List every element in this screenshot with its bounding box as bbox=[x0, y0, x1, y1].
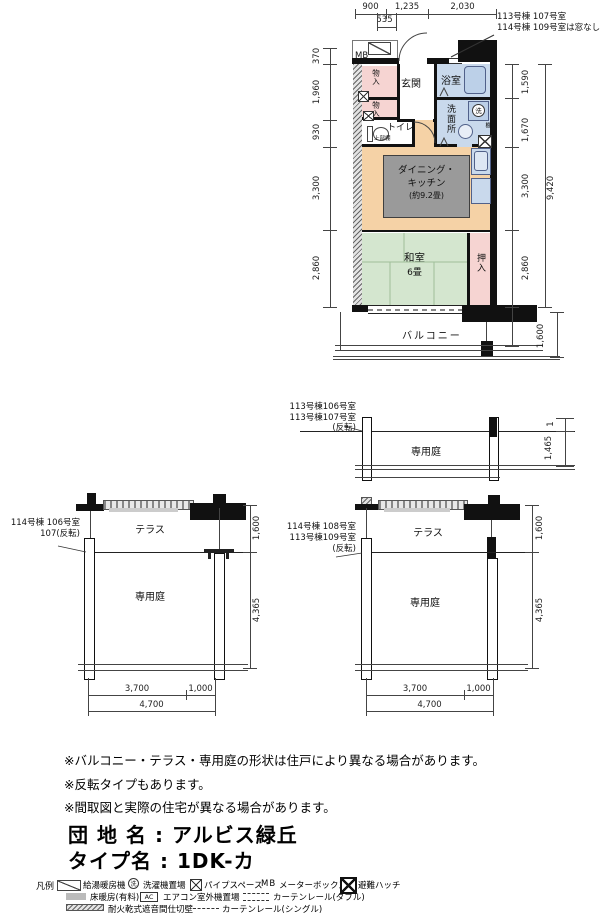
water-heater-icon bbox=[57, 880, 81, 891]
tick bbox=[556, 418, 574, 419]
legend-pipe-space: パイプスペース bbox=[204, 879, 262, 891]
dim-lterrace-1600: 1,600 bbox=[252, 508, 262, 548]
dim-r-1000: 1,000 bbox=[464, 684, 493, 694]
tick bbox=[323, 147, 337, 148]
unit-label-line: 113号棟107号室 bbox=[270, 413, 356, 424]
post bbox=[214, 553, 225, 680]
unit-label-line: (反転) bbox=[278, 544, 356, 555]
toilet-shelf-label: 上部棚 bbox=[374, 134, 391, 142]
post bbox=[487, 558, 498, 680]
dim-line bbox=[557, 312, 558, 357]
tick bbox=[323, 307, 337, 308]
kitchen-counter bbox=[471, 178, 491, 204]
pipe-space-icon bbox=[190, 879, 202, 891]
terrace-line bbox=[361, 552, 530, 553]
garden-line bbox=[355, 465, 575, 466]
balcony-hatch-block bbox=[481, 341, 493, 357]
legend-floor-heating: 床暖房(有料) bbox=[90, 891, 139, 903]
dim-line bbox=[366, 695, 493, 696]
sink bbox=[458, 124, 473, 139]
garden-line bbox=[78, 670, 248, 671]
wall bbox=[362, 144, 412, 147]
curtain-single-icon bbox=[193, 908, 219, 909]
separator: : bbox=[155, 823, 164, 847]
dim-line bbox=[88, 695, 215, 696]
dim-rterrace-1600: 1,600 bbox=[535, 508, 545, 548]
left-garden-unit-label: 114号棟 106号室 107(反転) bbox=[0, 518, 80, 540]
dim-line bbox=[565, 418, 566, 467]
dim-l-3700: 3,700 bbox=[88, 684, 186, 694]
wall bbox=[427, 58, 449, 64]
ac-icon: AC bbox=[140, 892, 158, 902]
type-name: 1DK-カ bbox=[177, 849, 255, 873]
legend-washer: 洗濯機置場 bbox=[143, 879, 186, 891]
shelf-label: 棚 bbox=[484, 122, 490, 128]
fence-line bbox=[366, 508, 367, 538]
dim-right-1590: 1,590 bbox=[521, 62, 531, 102]
dim-r-4700: 4,700 bbox=[366, 700, 493, 710]
dim-top-2030: 2,030 bbox=[428, 2, 497, 12]
dim-1465: 1,465 bbox=[544, 428, 554, 468]
post bbox=[361, 538, 372, 680]
oshiire-label: 押入 bbox=[475, 253, 484, 273]
dk-label-3: (約9.2畳) bbox=[384, 190, 469, 202]
estate-label: 団 地 名 bbox=[68, 823, 147, 847]
dim-left-2860: 2,860 bbox=[312, 248, 322, 288]
entrance-door-arc bbox=[399, 33, 427, 61]
tick bbox=[377, 13, 378, 31]
wall bbox=[464, 504, 520, 520]
ground-line bbox=[333, 359, 560, 360]
tick bbox=[525, 552, 539, 553]
rail-shadow bbox=[384, 508, 450, 512]
tick bbox=[505, 64, 519, 65]
left-garden-label: 専用庭 bbox=[110, 588, 190, 603]
floor-plan-sheet: 900 1,235 2,030 535 113号棟 107号室 114号棟 10… bbox=[0, 0, 609, 915]
dk-label-2: キッチン bbox=[384, 177, 469, 190]
fence-line bbox=[90, 511, 91, 540]
legend-water-heater: 給湯暖房機 bbox=[83, 879, 126, 891]
tick bbox=[505, 307, 519, 308]
tick bbox=[505, 230, 519, 231]
tick bbox=[525, 668, 539, 669]
pipe-space-icon bbox=[478, 135, 492, 148]
ext-line bbox=[215, 678, 216, 716]
dim-right-1670: 1,670 bbox=[521, 110, 531, 150]
garden-line bbox=[355, 670, 528, 671]
unit-label-line: 113号棟109号室 bbox=[278, 533, 356, 544]
storage2-label: 物入 bbox=[372, 101, 380, 118]
dk-rug: ダイニング・ キッチン (約9.2畳) bbox=[383, 155, 470, 218]
garden-fence-line bbox=[300, 431, 575, 432]
kitchen-sink bbox=[474, 151, 488, 171]
dim-left-930: 930 bbox=[312, 112, 322, 152]
dim-line bbox=[532, 505, 533, 668]
balcony-label: バルコニー bbox=[402, 327, 462, 342]
tick bbox=[355, 9, 356, 19]
note-2: ※反転タイプもあります。 bbox=[64, 774, 211, 793]
tick bbox=[525, 505, 539, 506]
tick bbox=[538, 307, 552, 308]
dim-line bbox=[88, 711, 215, 712]
dim-left-1960: 1,960 bbox=[312, 72, 322, 112]
post-cap bbox=[489, 417, 497, 437]
right-terrace-label: テラス bbox=[398, 524, 458, 539]
washroom-label: 洗面所 bbox=[445, 104, 454, 134]
toilet-label: トイレ bbox=[387, 120, 414, 133]
washer-icon: 洗 bbox=[128, 878, 139, 889]
unit-label-line: 114号棟 108号室 bbox=[278, 522, 356, 533]
bath-label: 浴室 bbox=[441, 72, 461, 87]
dim-line bbox=[330, 48, 331, 307]
dk-label-1: ダイニング・ bbox=[384, 164, 469, 177]
bathtub bbox=[464, 66, 486, 94]
ground-line bbox=[333, 356, 560, 357]
dim-rgarden-4365: 4,365 bbox=[535, 590, 545, 630]
wall bbox=[462, 305, 537, 322]
post-cap bbox=[213, 494, 226, 503]
garden-line bbox=[355, 469, 575, 470]
storage1-label: 物入 bbox=[372, 69, 380, 86]
dim-balcony-1600: 1,600 bbox=[536, 316, 546, 356]
garden-line bbox=[78, 664, 248, 665]
type-label: タイプ名 bbox=[68, 849, 152, 873]
tick bbox=[323, 64, 337, 65]
dim-total-9420: 9,420 bbox=[546, 168, 556, 208]
post bbox=[84, 538, 95, 680]
dim-top-1235: 1,235 bbox=[386, 2, 428, 12]
top-garden-unit-label: 113号棟106号室 113号棟107号室 (反転) bbox=[270, 402, 356, 434]
ac-stand-leg bbox=[226, 552, 229, 559]
unit-label-line: 107(反転) bbox=[0, 529, 80, 540]
washitsu-label: 和室 bbox=[362, 250, 467, 265]
right-garden-label: 専用庭 bbox=[385, 594, 465, 609]
type-name-line: タイプ名:1DK-カ bbox=[68, 845, 255, 874]
wall bbox=[190, 503, 246, 520]
garden-line bbox=[355, 477, 500, 478]
washitsu-size-label: 6畳 bbox=[362, 265, 467, 278]
floor-heating-icon bbox=[66, 893, 86, 900]
washer-symbol: 洗 bbox=[472, 104, 485, 117]
estate-name-line: 団 地 名:アルビス緑丘 bbox=[68, 819, 298, 848]
tick bbox=[556, 431, 574, 432]
dim-right-3300: 3,300 bbox=[521, 166, 531, 206]
post-cap bbox=[87, 493, 96, 511]
fire-wall-icon bbox=[66, 904, 104, 911]
left-terrace-label: テラス bbox=[120, 521, 180, 536]
dim-r-3700: 3,700 bbox=[366, 684, 464, 694]
top-garden-label: 専用庭 bbox=[362, 443, 490, 458]
dim-left-3300: 3,300 bbox=[312, 168, 322, 208]
balcony-rail bbox=[335, 350, 543, 351]
room-genkan bbox=[397, 64, 437, 120]
ac-stand-leg bbox=[208, 552, 211, 559]
tick bbox=[550, 312, 564, 313]
dim-top-900: 900 bbox=[355, 2, 386, 12]
tick bbox=[538, 64, 552, 65]
dim-line bbox=[250, 505, 251, 668]
dim-lgarden-4365: 4,365 bbox=[252, 590, 262, 630]
curtain-double-icon bbox=[243, 893, 269, 901]
tick bbox=[505, 98, 519, 99]
sliding-door-track bbox=[362, 230, 490, 232]
dim-line bbox=[512, 64, 513, 346]
note-3: ※間取図と実際の住宅が異なる場合があります。 bbox=[64, 797, 336, 816]
dim-l-4700: 4,700 bbox=[88, 700, 215, 710]
legend-ac-space: エアコン室外機置場 bbox=[163, 891, 240, 903]
pole bbox=[219, 508, 220, 549]
tick bbox=[243, 668, 257, 669]
estate-name: アルビス緑丘 bbox=[172, 823, 298, 847]
right-garden-unit-label: 114号棟 108号室 113号棟109号室 (反転) bbox=[278, 522, 356, 555]
post-cap bbox=[488, 495, 500, 504]
tick bbox=[323, 48, 337, 49]
dim-l-1000: 1,000 bbox=[186, 684, 215, 694]
separator: : bbox=[160, 849, 169, 873]
pole bbox=[491, 520, 492, 538]
tick bbox=[505, 147, 519, 148]
legend-heading: 凡例 bbox=[36, 879, 54, 892]
wall bbox=[467, 233, 470, 305]
dim-left-370: 370 bbox=[312, 36, 322, 76]
dim-line bbox=[366, 711, 493, 712]
label-leader bbox=[58, 546, 86, 552]
rail-shadow bbox=[109, 508, 178, 512]
wall bbox=[352, 305, 368, 312]
tick bbox=[556, 466, 574, 467]
legend-mb-abbr: MB bbox=[261, 879, 276, 889]
annotation-line1: 113号棟 107号室 bbox=[497, 12, 600, 23]
tick bbox=[323, 230, 337, 231]
unit-label-line: 114号棟 106号室 bbox=[0, 518, 80, 529]
dim-line bbox=[377, 27, 396, 28]
genkan-label: 玄関 bbox=[401, 75, 421, 90]
tick bbox=[428, 9, 429, 19]
post-cap bbox=[487, 537, 496, 558]
tick bbox=[243, 505, 257, 506]
tick bbox=[243, 552, 257, 553]
pipe-space-icon bbox=[358, 91, 369, 102]
legend-fire-wall: 耐火乾式遮音間仕切壁 bbox=[108, 903, 193, 915]
balcony-door-sill bbox=[368, 305, 462, 314]
tick bbox=[505, 346, 519, 347]
terrace-line bbox=[84, 552, 250, 553]
note-1: ※バルコニー・テラス・専用庭の形状は住戸により異なる場合があります。 bbox=[64, 750, 485, 769]
tick bbox=[550, 357, 564, 358]
dim-right-2860: 2,860 bbox=[521, 248, 531, 288]
wall bbox=[397, 64, 400, 120]
wall bbox=[437, 97, 490, 100]
ext-line bbox=[493, 678, 494, 716]
wall bbox=[490, 58, 497, 312]
legend-curtain-single: カーテンレール(シングル) bbox=[222, 903, 322, 915]
annotation-line2: 114号棟 109号室は窓なし bbox=[497, 23, 600, 34]
unit-label-line: 113号棟106号室 bbox=[270, 402, 356, 413]
garden-line bbox=[355, 664, 528, 665]
wall bbox=[437, 144, 457, 147]
water-heater-icon bbox=[368, 42, 391, 55]
legend-meter-box: メーターボックス bbox=[279, 879, 347, 891]
tick bbox=[323, 120, 337, 121]
tick bbox=[396, 13, 397, 31]
legend-curtain-double: カーテンレール(ダブル) bbox=[273, 891, 365, 903]
legend-escape-hatch: 避難ハッチ bbox=[358, 879, 401, 891]
window-annotation: 113号棟 107号室 114号棟 109号室は窓なし bbox=[497, 12, 600, 33]
wall bbox=[434, 64, 437, 147]
